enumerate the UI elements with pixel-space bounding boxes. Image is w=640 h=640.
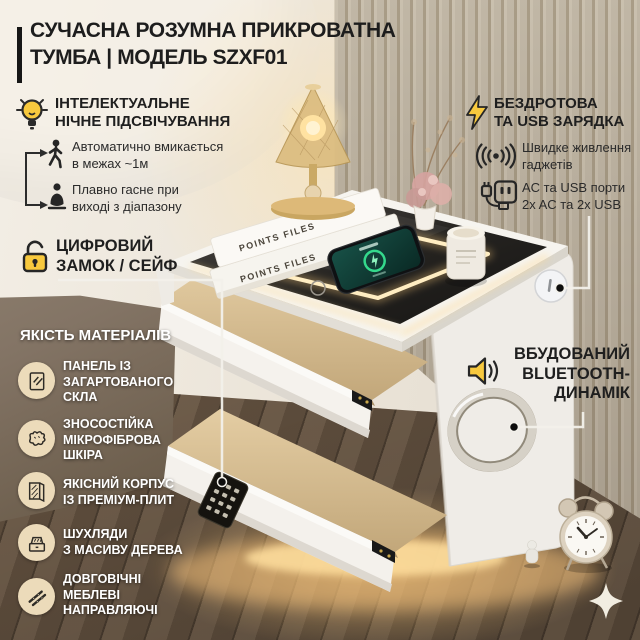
lightbulb-icon: [15, 95, 49, 135]
drawer-box-icon: [18, 524, 55, 561]
leather-icon: [18, 420, 55, 457]
promo-poster: POINTS FILES POINTS FILES: [0, 0, 640, 640]
title-accent-bar: [17, 27, 22, 83]
power-outlet-icon: [480, 180, 518, 212]
wireless-signal-icon: [474, 143, 518, 169]
material-item-1: ПАНЕЛЬ ІЗ ЗАГАРТОВАНОГО СКЛА: [63, 359, 173, 406]
night-light-item-2: Плавно гасне при виході з діапазону: [72, 182, 182, 215]
table-lamp: [271, 84, 355, 220]
materials-heading: ЯКІСТЬ МАТЕРІАЛІВ: [20, 327, 171, 344]
night-light-heading: ІНТЕЛЕКТУАЛЬНЕ НІЧНЕ ПІДСВІЧУВАННЯ: [55, 95, 230, 131]
sparkle-star: [589, 583, 623, 619]
lightning-icon: [464, 95, 490, 131]
charging-item-2: AC та USB порти 2x AC та 2x USB: [522, 180, 625, 213]
speaker-heading: ВБУДОВАНИЙ BLUETOOTH- ДИНАМІК: [500, 345, 630, 404]
material-item-5: ДОВГОВІЧНІ МЕБЛЕВІ НАПРАВЛЯЮЧІ: [63, 572, 158, 619]
material-item-4: ШУХЛЯДИ З МАСИВУ ДЕРЕВА: [63, 527, 183, 558]
charging-item-1: Швидке живлення гаджетів: [522, 140, 631, 173]
speaker-icon: [466, 354, 502, 388]
board-icon: [18, 472, 55, 509]
power-port: [535, 270, 567, 302]
title-line1: СУЧАСНА РОЗУМНА ПРИКРОВАТНА: [30, 17, 396, 44]
material-item-3: ЯКІСНИЙ КОРПУС ІЗ ПРЕМІУМ-ПЛИТ: [63, 477, 174, 508]
candle-jar: [445, 226, 487, 287]
walking-person-icon: [45, 139, 67, 169]
charging-heading: БЕЗДРОТОВА ТА USB ЗАРЯДКА: [494, 95, 624, 131]
title-line2: ТУМБА | МОДЕЛЬ SZXF01: [30, 44, 396, 71]
padlock-icon: [17, 236, 51, 276]
night-light-item-1: Автоматично вмикається в межах ~1м: [72, 139, 223, 172]
digital-lock-heading: ЦИФРОВИЙ ЗАМОК / СЕЙФ: [56, 237, 178, 276]
rails-icon: [18, 578, 55, 615]
sitting-person-icon: [46, 182, 68, 212]
flower-vase: [406, 115, 465, 230]
glass-panel-icon: [18, 362, 55, 399]
page-title: СУЧАСНА РОЗУМНА ПРИКРОВАТНА ТУМБА | МОДЕ…: [30, 17, 396, 71]
material-item-2: ЗНОСОСТІЙКА МІКРОФІБРОВА ШКІРА: [63, 417, 161, 464]
